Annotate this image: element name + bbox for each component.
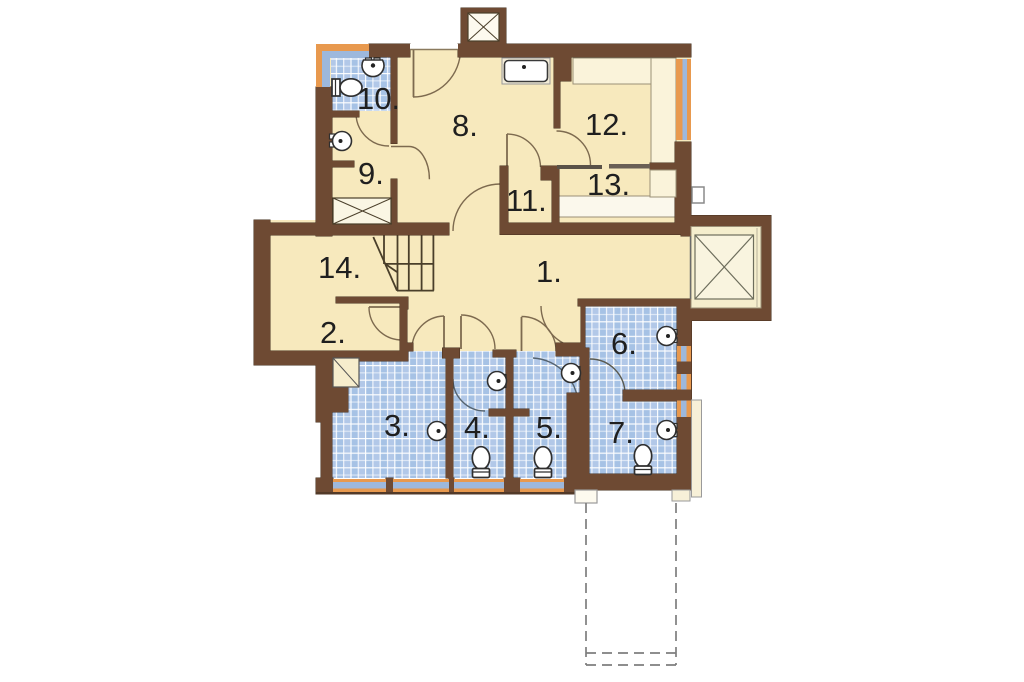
svg-text:12.: 12. xyxy=(585,107,628,142)
svg-text:2.: 2. xyxy=(320,315,346,350)
svg-text:14.: 14. xyxy=(318,250,361,285)
svg-text:7.: 7. xyxy=(608,415,634,450)
svg-text:1.: 1. xyxy=(536,254,562,289)
svg-text:8.: 8. xyxy=(452,108,478,143)
svg-text:6.: 6. xyxy=(611,326,637,361)
svg-text:11.: 11. xyxy=(506,183,547,218)
svg-text:13.: 13. xyxy=(587,167,630,202)
svg-text:9.: 9. xyxy=(358,156,384,191)
svg-text:4.: 4. xyxy=(464,410,490,445)
svg-text:5.: 5. xyxy=(536,410,562,445)
svg-text:10.: 10. xyxy=(357,81,400,116)
svg-text:3.: 3. xyxy=(384,408,410,443)
